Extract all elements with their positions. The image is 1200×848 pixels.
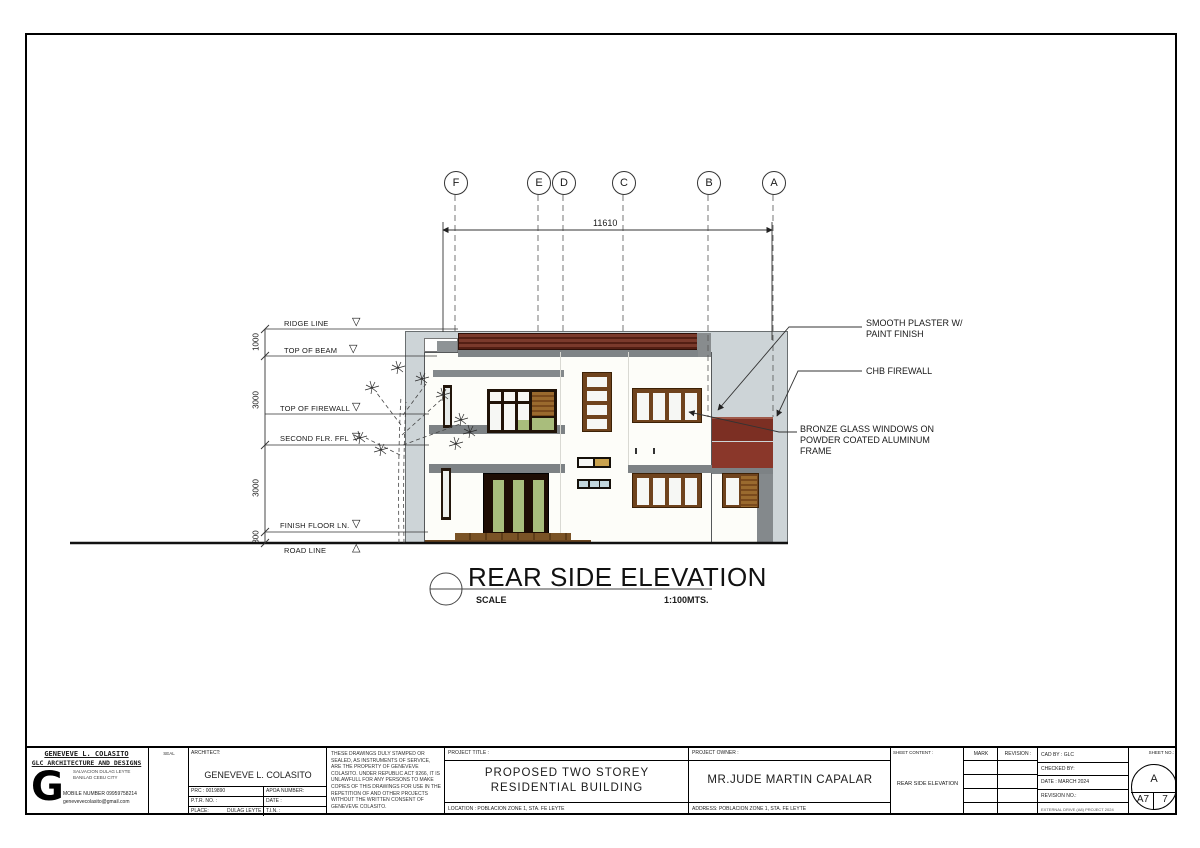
level-marker-icon: ▽ — [352, 402, 360, 412]
architect-prc: PRC : 0019890 — [191, 788, 225, 794]
sheet-no-top: A — [1143, 773, 1165, 785]
architect-cell: ARCHITECT: GENEVEVE L. COLASITO PRC : 00… — [188, 748, 327, 815]
drawing-scale-label: SCALE — [476, 595, 507, 605]
revision-header: REVISION : — [998, 751, 1038, 757]
sheet-no-bottom-right: 7 — [1156, 794, 1174, 805]
project-title-cell: PROJECT TITLE : PROPOSED TWO STOREY RESI… — [444, 748, 689, 815]
sheet-content-header: SHEET CONTENT : — [893, 750, 933, 755]
drawing-scale-value: 1:100MTS. — [664, 595, 709, 605]
level-top-of-firewall: TOP OF FIREWALL — [280, 404, 350, 413]
cad-by: CAD BY : GLC — [1041, 752, 1074, 758]
architect-apoa: APOA NUMBER: — [266, 788, 304, 794]
firm-email: genevevecolasito@gmail.com — [63, 799, 130, 805]
architect-place: PLACE: — [191, 808, 209, 814]
drawing-title: REAR SIDE ELEVATION — [468, 562, 767, 593]
level-marker-icon: △ — [352, 543, 360, 553]
vertical-dim-3000-lower: 3000 — [252, 479, 261, 497]
project-owner-header: PROJECT OWNER : — [692, 750, 739, 756]
revision-no: REVISION NO.: — [1041, 793, 1077, 799]
mark-header: MARK — [964, 751, 998, 757]
project-owner-name: MR.JUDE MARTIN CAPALAR — [689, 774, 891, 786]
title-block: GENEVEVE L. COLASITO GLC ARCHITECTURE AN… — [25, 746, 1177, 815]
grid-bubble-c: C — [612, 171, 636, 195]
seal-cell: SEAL — [148, 748, 189, 815]
architect-date: DATE : — [266, 798, 282, 804]
seal-label: SEAL — [149, 751, 189, 756]
annotation-smooth-plaster: SMOOTH PLASTER W/ PAINT FINISH — [866, 318, 978, 340]
firm-logo: G — [31, 764, 62, 810]
level-marker-icon: ▽ — [349, 344, 357, 354]
level-finish-floor: FINISH FLOOR LN. — [280, 521, 349, 530]
sheet-no-header: SHEET NO.: — [1129, 750, 1174, 755]
grid-bubble-f: F — [444, 171, 468, 195]
linework-layer — [0, 0, 1200, 848]
project-location: LOCATION : POBLACION ZONE 1, STA. FE LEY… — [448, 806, 565, 812]
cad-date: DATE : MARCH 2024 — [1041, 779, 1089, 785]
firm-cell: GENEVEVE L. COLASITO GLC ARCHITECTURE AN… — [25, 748, 148, 815]
level-marker-icon: ▽ — [352, 432, 360, 442]
grid-bubble-a: A — [762, 171, 786, 195]
disclaimer-text: THESE DRAWINGS DULY STAMPED OR SEALED, A… — [331, 751, 441, 810]
drive-note: EXTERNAL DRIVE (A8) PROJECT 2024 — [1041, 807, 1114, 812]
level-road-line: ROAD LINE — [284, 546, 326, 555]
project-owner-cell: PROJECT OWNER : MR.JUDE MARTIN CAPALAR A… — [688, 748, 891, 815]
disclaimer-cell: THESE DRAWINGS DULY STAMPED OR SEALED, A… — [326, 748, 445, 815]
level-marker-icon: ▽ — [352, 317, 360, 327]
annotation-chb-firewall: CHB FIREWALL — [866, 366, 986, 377]
level-marker-icon: ▽ — [352, 519, 360, 529]
sheet-no-bottom-left: A7 — [1133, 794, 1153, 805]
project-title-header: PROJECT TITLE : — [448, 750, 489, 756]
drawing-sheet: F E D C B A 11610 RIDGE LINE ▽ TOP OF BE… — [0, 0, 1200, 848]
firm-address-1: SALVACION DULAG LEYTE — [73, 769, 130, 774]
grid-bubble-d: D — [552, 171, 576, 195]
architect-tin: T.I.N. : — [266, 808, 280, 814]
annotation-bronze-glass: BRONZE GLASS WINDOWS ON POWDER COATED AL… — [800, 424, 952, 457]
project-title-line2: RESIDENTIAL BUILDING — [445, 782, 689, 794]
architect-place-value: DULAG LEYTE — [227, 808, 261, 814]
architect-ptr: P.T.R. NO. : — [191, 798, 217, 804]
firm-address-2: BANILAD CEBU CITY — [73, 775, 118, 780]
grid-bubble-b: B — [697, 171, 721, 195]
cad-info-cell: CAD BY : GLC CHECKED BY: DATE : MARCH 20… — [1037, 748, 1129, 815]
tree-sketch — [353, 361, 477, 543]
level-ridge-line: RIDGE LINE — [284, 319, 329, 328]
mark-cell: MARK — [963, 748, 998, 815]
sheet-content-cell: SHEET CONTENT : REAR SIDE ELEVATION — [890, 748, 964, 815]
sheet-number-cell: SHEET NO.: A A7 7 — [1128, 748, 1178, 815]
architect-name: GENEVEVE L. COLASITO — [189, 770, 327, 780]
checked-by: CHECKED BY: — [1041, 766, 1075, 772]
revision-cell: REVISION : — [997, 748, 1038, 815]
level-second-floor-ffl: SECOND FLR. FFL — [280, 434, 349, 443]
level-top-of-beam: TOP OF BEAM — [284, 346, 337, 355]
vertical-dim-1000: 1000 — [252, 333, 261, 351]
firm-name: GENEVEVE L. COLASITO — [25, 750, 148, 758]
firm-mobile: MOBILE NUMBER 09959758214 — [63, 791, 137, 797]
sheet-content-value: REAR SIDE ELEVATION — [891, 781, 964, 787]
architect-header: ARCHITECT: — [191, 750, 220, 756]
vertical-dim-300: 300 — [252, 530, 261, 543]
project-title-line1: PROPOSED TWO STOREY — [445, 767, 689, 779]
grid-bubble-e: E — [527, 171, 551, 195]
vertical-dim-3000-upper: 3000 — [252, 391, 261, 409]
project-owner-address: ADDRESS: POBLACION ZONE 1, STA. FE LEYTE — [692, 806, 806, 812]
top-dimension-value: 11610 — [593, 218, 617, 228]
